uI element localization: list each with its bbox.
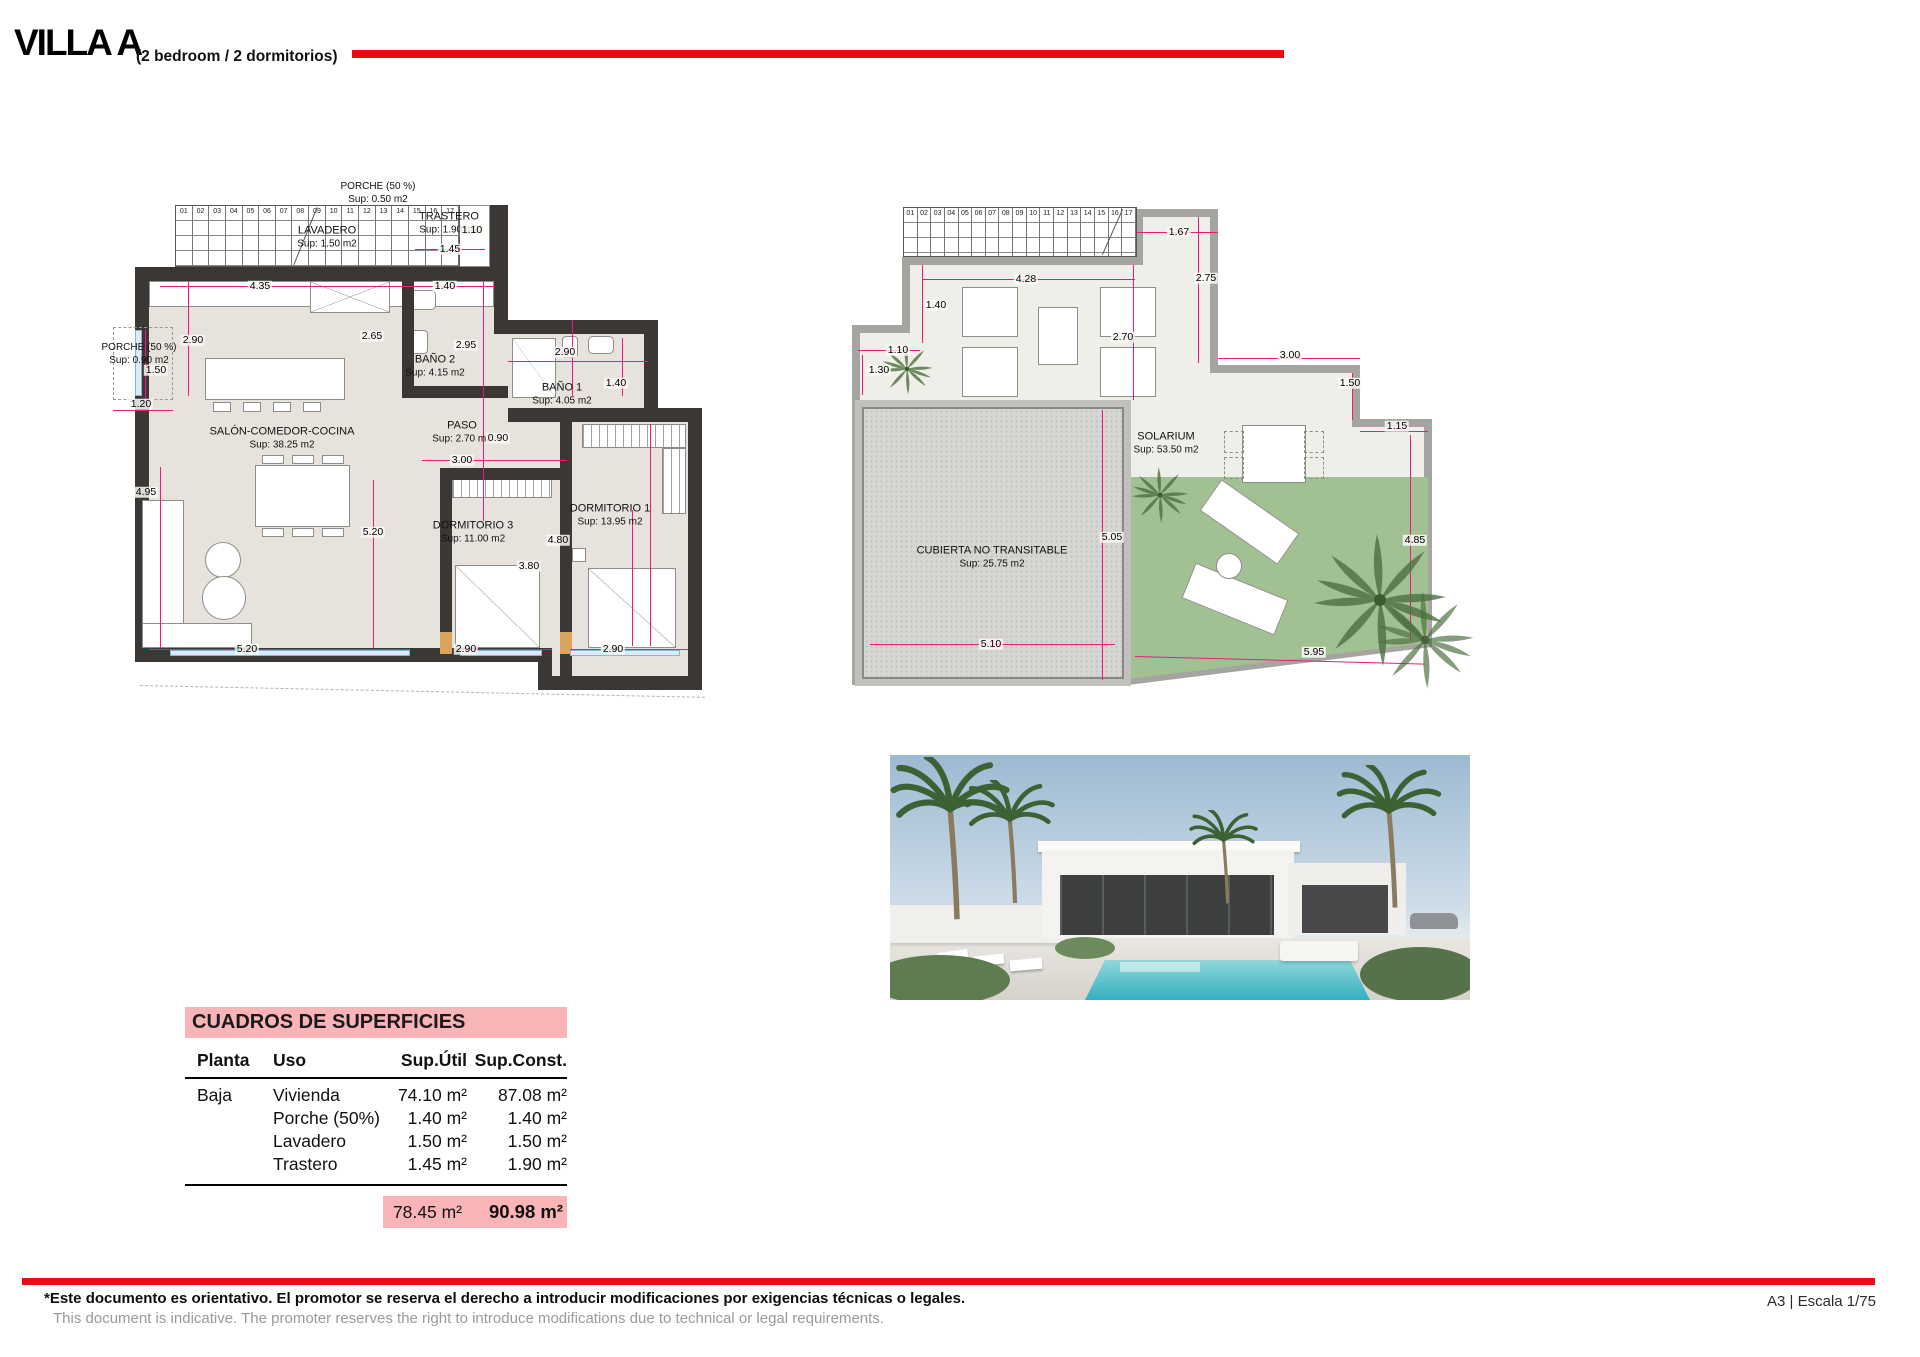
photo-bush	[1360, 947, 1470, 1000]
cell-planta	[185, 1130, 273, 1153]
surface-table-header: Planta Uso Sup.Útil Sup.Const.	[185, 1050, 567, 1079]
sheet-info: A3 | Escala 1/75	[1767, 1293, 1876, 1310]
room-label-dorm1: DORMITORIO 1Sup: 13.95 m2	[570, 501, 650, 528]
stair-tread: 06	[972, 208, 986, 256]
wall-segment	[508, 408, 644, 422]
page-subtitle: (2 bedroom / 2 dormitorios)	[136, 48, 338, 66]
chair	[322, 455, 344, 464]
stair-tread: 10	[1027, 208, 1041, 256]
room-label-cubierta: CUBIERTA NO TRANSITABLESup: 25.75 m2	[917, 543, 1068, 570]
dimension-line	[862, 355, 863, 395]
dimension-line	[483, 281, 484, 521]
dimension: 1.15	[1385, 421, 1409, 432]
photo-pool-steps	[1120, 962, 1200, 972]
sun-lounger	[1100, 347, 1156, 397]
dimension: 4.80	[546, 535, 570, 546]
coffee-table	[205, 542, 241, 578]
stair-tread: 04	[945, 208, 959, 256]
dimension: 2.90	[601, 644, 625, 655]
header-rule	[352, 50, 1284, 58]
dimension: 1.10	[460, 225, 484, 236]
cell-util: 1.40 m²	[385, 1107, 467, 1130]
surface-table-body: Baja Vivienda 74.10 m² 87.08 m² Porche (…	[185, 1079, 567, 1186]
villa-render-photo	[890, 755, 1470, 1000]
column-header: Sup.Útil	[385, 1050, 467, 1071]
dimension: 1.45	[438, 244, 462, 255]
room-label-dorm3: DORMITORIO 3Sup: 11.00 m2	[433, 518, 513, 545]
wardrobe	[582, 424, 686, 448]
dimension: 1.40	[433, 281, 457, 292]
stair-tread: 05	[959, 208, 973, 256]
stool	[213, 402, 231, 412]
cell-const: 1.50 m²	[467, 1130, 567, 1153]
sofa	[142, 500, 184, 625]
coffee-table	[202, 576, 246, 620]
dimension: 1.67	[1167, 227, 1191, 238]
cell-const: 1.40 m²	[467, 1107, 567, 1130]
cell-util: 74.10 m²	[385, 1084, 467, 1107]
chair	[262, 455, 284, 464]
stair-tread: 07	[986, 208, 1000, 256]
stair-tread: 03	[931, 208, 945, 256]
stool	[243, 402, 261, 412]
grass-table	[1216, 553, 1242, 579]
palm-tree-icon	[1128, 463, 1192, 527]
table-row: Trastero 1.45 m² 1.90 m²	[185, 1153, 567, 1176]
dimension: 4.85	[1403, 535, 1427, 546]
door-frame	[440, 632, 452, 654]
stair-tread: 01	[904, 208, 918, 256]
column-header: Sup.Const.	[467, 1050, 567, 1071]
stair-tread: 09	[1013, 208, 1027, 256]
dimension: 1.20	[129, 399, 153, 410]
dimension: 1.40	[604, 378, 628, 389]
outdoor-chair	[1304, 431, 1324, 453]
chair	[262, 528, 284, 537]
cell-const: 1.90 m²	[467, 1153, 567, 1176]
dimension-line	[373, 480, 374, 648]
stair-tread: 06	[259, 206, 276, 266]
stair-tread: 08	[999, 208, 1013, 256]
cell-uso: Porche (50%)	[273, 1107, 385, 1130]
wall-segment	[440, 480, 452, 648]
stair-tread: 15	[1095, 208, 1109, 256]
chair	[292, 455, 314, 464]
cell-planta: Baja	[185, 1084, 273, 1107]
wall-segment	[402, 386, 508, 398]
dimension: 1.50	[144, 365, 168, 376]
stool	[303, 402, 321, 412]
dimension: 1.30	[867, 365, 891, 376]
stair-tread: 14	[1081, 208, 1095, 256]
roof-solarium-plan: 0102030405060708091011121314151617 SOLAR…	[850, 195, 1465, 700]
disclaimer-es: *Este documento es orientativo. El promo…	[44, 1290, 965, 1307]
staircase: 0102030405060708091011121314151617	[903, 207, 1137, 257]
stair-tread: 14	[392, 206, 409, 266]
dimension: 5.10	[979, 639, 1003, 650]
stair-tread: 13	[1068, 208, 1082, 256]
room-label-bano1: BAÑO 1Sup: 4.05 m2	[532, 380, 591, 407]
kitchen-island	[205, 358, 345, 400]
room-label-bano2: BAÑO 2Sup: 4.15 m2	[405, 352, 464, 379]
outdoor-table	[1242, 425, 1306, 483]
outdoor-chair	[1304, 457, 1324, 479]
total-const: 90.98 m²	[468, 1196, 563, 1228]
palm-tree-icon	[960, 780, 1070, 905]
sun-lounger	[1100, 287, 1156, 337]
photo-car	[1410, 913, 1458, 929]
room-label-salon: SALÓN-COMEDOR-COCINASup: 38.25 m2	[210, 424, 355, 451]
dimension: 1.10	[886, 345, 910, 356]
stair-tread: 03	[209, 206, 226, 266]
dimension-line	[632, 510, 633, 646]
dimension: 2.90	[181, 335, 205, 346]
stair-tread: 17	[1122, 208, 1136, 256]
stair-tread: 13	[376, 206, 393, 266]
stool	[273, 402, 291, 412]
total-util: 78.45 m²	[381, 1196, 462, 1228]
dimension-line	[149, 649, 410, 650]
bed-dorm3	[455, 565, 540, 648]
dimension-line	[508, 361, 648, 362]
dimension-line	[1102, 410, 1103, 680]
dimension-line	[570, 649, 688, 650]
side-table	[1038, 307, 1078, 365]
room-label-solarium: SOLARIUMSup: 53.50 m2	[1133, 429, 1198, 456]
dimension: 5.95	[1302, 647, 1326, 658]
dimension: 5.20	[361, 527, 385, 538]
cell-uso: Trastero	[273, 1153, 385, 1176]
chair	[292, 528, 314, 537]
cell-uso: Vivienda	[273, 1084, 385, 1107]
dimension: 5.05	[1100, 532, 1124, 543]
column-header: Planta	[185, 1050, 273, 1071]
stair-tread: 04	[226, 206, 243, 266]
outdoor-chair	[1224, 431, 1244, 453]
dimension: 4.95	[134, 487, 158, 498]
photo-bush	[1055, 937, 1115, 959]
dimension-line	[1198, 217, 1199, 363]
wall-segment	[490, 205, 508, 267]
cell-util: 1.45 m²	[385, 1153, 467, 1176]
cell-planta	[185, 1153, 273, 1176]
window	[170, 650, 410, 656]
palm-tree-icon	[1185, 810, 1270, 905]
palm-tree-icon	[1330, 765, 1460, 910]
sun-lounger	[962, 347, 1018, 397]
dimension-line	[160, 467, 161, 648]
stair-tread: 07	[276, 206, 293, 266]
stair-tread: 12	[359, 206, 376, 266]
cell-uso: Lavadero	[273, 1130, 385, 1153]
table-row: Baja Vivienda 74.10 m² 87.08 m²	[185, 1084, 567, 1107]
stair-tread: 05	[243, 206, 260, 266]
surface-table-total: 78.45 m² 90.98 m²	[185, 1196, 567, 1228]
wall-segment	[440, 468, 560, 480]
dimension: 0.90	[486, 433, 510, 444]
stair-tread: 01	[176, 206, 193, 266]
dimension: 2.95	[454, 340, 478, 351]
room-label-paso: PASOSup: 2.70 m2	[432, 418, 491, 445]
cell-util: 1.50 m²	[385, 1130, 467, 1153]
sun-lounger	[962, 287, 1018, 337]
dimension: 1.40	[924, 300, 948, 311]
stair-tread: 11	[1040, 208, 1054, 256]
page-title: VILLA A	[14, 22, 141, 64]
dimension: 4.28	[1014, 274, 1038, 285]
dimension: 5.20	[235, 644, 259, 655]
dimension: 2.90	[553, 347, 577, 358]
surface-table-title: CUADROS DE SUPERFICIES	[185, 1007, 567, 1038]
ground-floor-plan: 0102030405060708091011121314151617	[110, 180, 710, 745]
dimension: 3.80	[517, 561, 541, 572]
dimension: 3.00	[450, 455, 474, 466]
dimension: 3.00	[1278, 350, 1302, 361]
cell-planta	[185, 1107, 273, 1130]
chair	[322, 528, 344, 537]
dimension: 2.65	[360, 331, 384, 342]
surface-table: CUADROS DE SUPERFICIES Planta Uso Sup.Út…	[185, 1007, 567, 1228]
dimension: 2.90	[454, 644, 478, 655]
dimension: 2.75	[1194, 273, 1218, 284]
table-row: Lavadero 1.50 m² 1.50 m²	[185, 1130, 567, 1153]
dimension-line	[650, 424, 651, 646]
stair-tread: 02	[193, 206, 210, 266]
room-label-porche-top: PORCHE (50 %)Sup: 0.50 m2	[340, 180, 415, 206]
dimension-line	[113, 410, 173, 411]
room-label-lavadero: LAVADEROSup: 1.50 m2	[297, 223, 356, 250]
column-header: Uso	[273, 1050, 385, 1071]
stair-tread: 02	[918, 208, 932, 256]
photo-outdoor-sofa	[1280, 941, 1358, 961]
dining-table	[255, 465, 350, 527]
outdoor-chair	[1224, 457, 1244, 479]
bath1-sink	[588, 336, 614, 354]
dimension: 1.50	[1338, 378, 1362, 389]
wardrobe	[662, 448, 686, 514]
dimension: 2.70	[1111, 332, 1135, 343]
footer-rule	[22, 1278, 1875, 1285]
dimension: 4.35	[248, 281, 272, 292]
table-row: Porche (50%) 1.40 m² 1.40 m²	[185, 1107, 567, 1130]
palm-tree-icon	[1370, 585, 1480, 695]
stair-tread: 12	[1054, 208, 1068, 256]
cell-const: 87.08 m²	[467, 1084, 567, 1107]
dimension-line	[422, 460, 567, 461]
nightstand	[572, 548, 586, 562]
disclaimer-en: This document is indicative. The promote…	[53, 1310, 884, 1327]
